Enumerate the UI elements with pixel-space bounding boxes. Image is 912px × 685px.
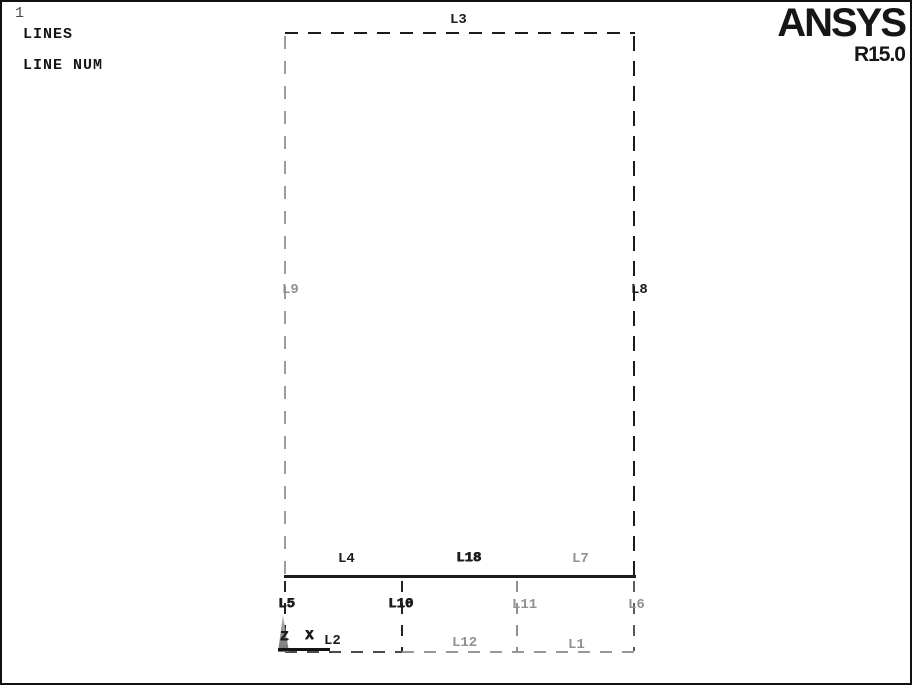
annotation-title: LINES (23, 26, 73, 43)
plot-number: 1 (15, 5, 24, 22)
label-l3: L3 (450, 13, 467, 27)
line-l4-l18-l7-solid (284, 575, 636, 578)
line-l8-right-dashed (633, 36, 635, 576)
ansys-logo: ANSYS R15.0 (777, 3, 905, 65)
label-l1: L1 (568, 638, 585, 652)
triad-z-label: Z (280, 630, 288, 644)
line-l12-l1-bottom-dashed (402, 651, 635, 653)
label-l6: L6 (628, 598, 645, 612)
label-l10: L10 (388, 597, 413, 611)
triad-x-axis-icon (278, 648, 330, 651)
label-l9: L9 (282, 283, 299, 297)
label-l11: L11 (512, 598, 537, 612)
label-l4: L4 (338, 552, 355, 566)
label-l12: L12 (452, 636, 477, 650)
label-l18: L18 (456, 551, 481, 565)
ansys-graphics-window[interactable]: 1 LINES LINE NUM ANSYS R15.0 Z X L3 L9 L… (0, 0, 912, 685)
annotation-subtitle: LINE NUM (23, 57, 103, 74)
line-l2-bottom-dashed (285, 651, 402, 653)
label-l8: L8 (631, 283, 648, 297)
triad-x-label: X (305, 629, 313, 643)
line-l9-left-dashed (284, 36, 286, 576)
ansys-version-text: R15.0 (777, 44, 905, 65)
line-l11-vertical-dashed (516, 581, 518, 651)
label-l5: L5 (278, 597, 295, 611)
ansys-brand-text: ANSYS (777, 3, 905, 43)
line-l3-top-dashed (285, 32, 635, 34)
label-l2: L2 (324, 634, 341, 648)
label-l7: L7 (572, 552, 589, 566)
line-l6-vertical-dashed (633, 581, 635, 651)
line-l10-vertical-dashed (401, 581, 403, 651)
